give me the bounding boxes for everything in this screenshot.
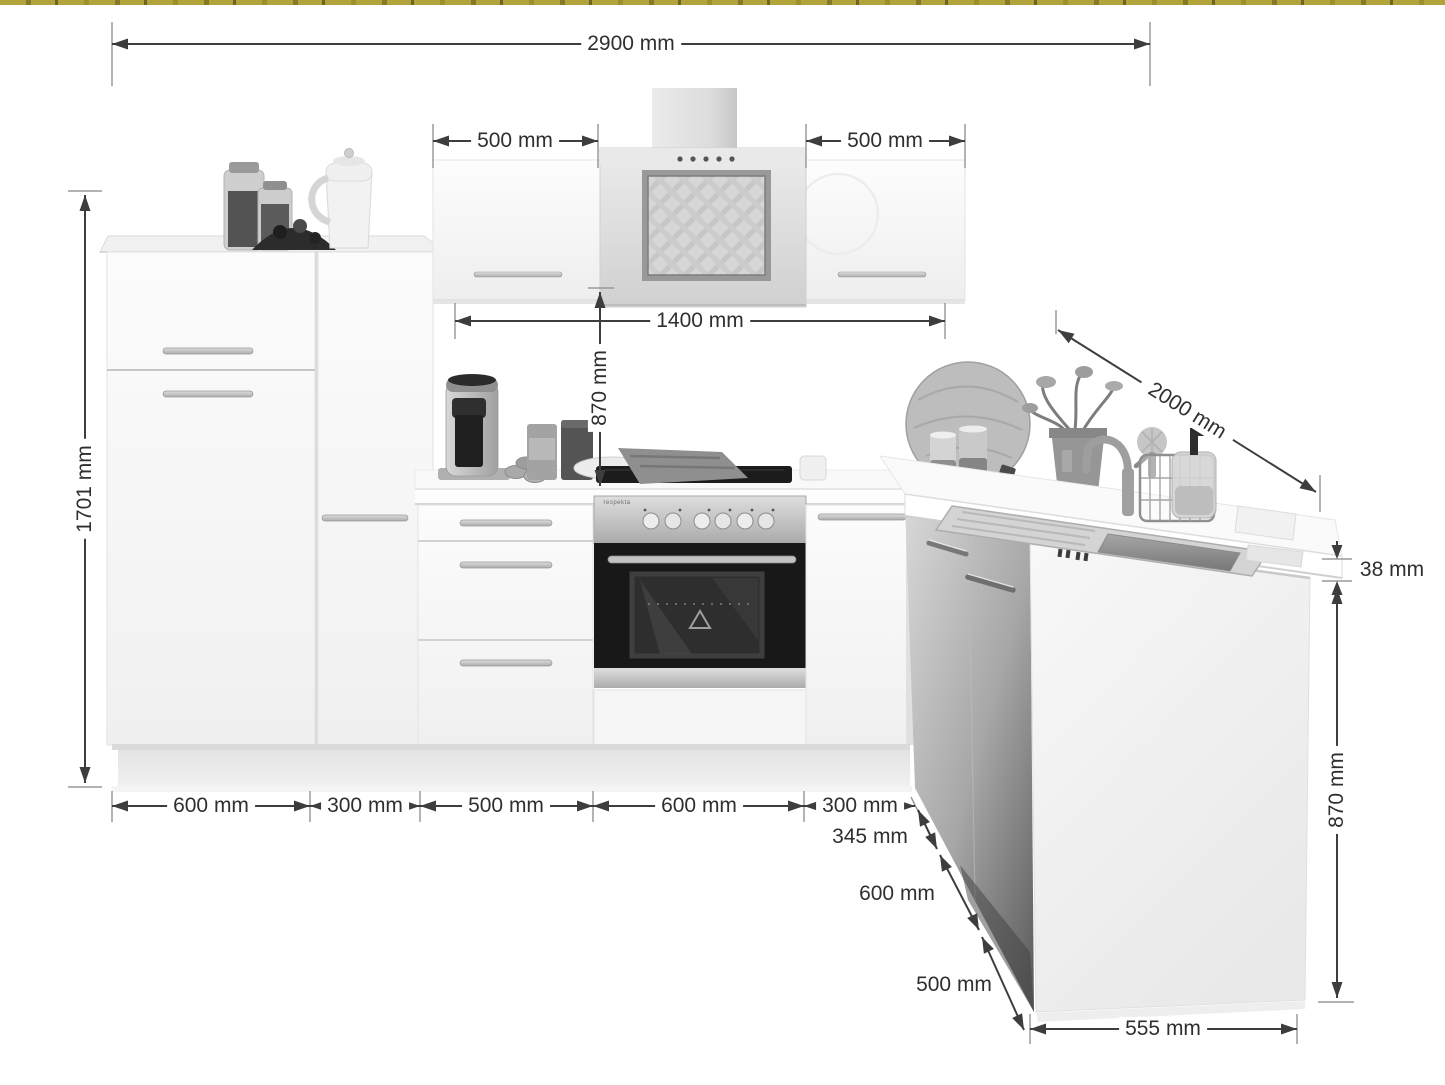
dim-worktop-thickness: 38 mm [1354, 558, 1430, 582]
dim-base-4: 600 mm [655, 794, 743, 818]
dim-hood-to-counter: 870 mm [588, 344, 612, 432]
dim-peninsula-width: 555 mm [1119, 1017, 1207, 1041]
corner-cabinet [905, 505, 1034, 1012]
base-right-handle [818, 514, 906, 520]
soap-dispenser [1172, 428, 1216, 518]
dim-wall-span: 1400 mm [650, 309, 750, 333]
drawer-handle-3 [460, 660, 552, 666]
base-unit-right [806, 505, 914, 745]
drawer-unit [418, 505, 593, 745]
enamel-pitcher [312, 149, 372, 249]
oven-handle [608, 556, 796, 563]
drawer-handle-1 [460, 520, 552, 526]
wall-cabinet-left [433, 160, 600, 304]
potted-plant [1022, 366, 1123, 492]
hood-chimney [652, 88, 737, 150]
dim-corner-3: 500 mm [910, 973, 998, 997]
dim-peninsula-height: 870 mm [1325, 746, 1349, 834]
wall-cabinet-right [798, 160, 965, 304]
dim-wall-cabinet-right: 500 mm [841, 129, 929, 153]
fridge-housing-cabinet [107, 252, 315, 745]
storage-jars [224, 162, 336, 250]
dim-wall-cabinet-left: 500 mm [471, 129, 559, 153]
range-hood [600, 88, 806, 307]
fridge-lower-handle [163, 391, 253, 397]
pantry-handle [322, 515, 408, 521]
fridge-upper-handle [163, 348, 253, 354]
dim-corner-1: 345 mm [826, 825, 914, 849]
mug [800, 456, 826, 480]
dim-base-2: 300 mm [321, 794, 409, 818]
dim-total-width: 2900 mm [581, 32, 681, 56]
oven [594, 496, 806, 745]
dim-base-5: 300 mm [816, 794, 904, 818]
hood-window [645, 173, 768, 278]
hob-and-towel [574, 448, 826, 484]
kitchen-illustration [0, 0, 1445, 1085]
product-dimension-diagram: 2900 mm 500 mm 500 mm 1400 mm 870 mm 170… [0, 0, 1445, 1085]
oven-brand-label: respekta [603, 500, 630, 506]
drawer-handle-2 [460, 562, 552, 568]
dim-base-1: 600 mm [167, 794, 255, 818]
dim-corner-2: 600 mm [853, 882, 941, 906]
peninsula-end-panel [1030, 540, 1310, 1022]
plinth [112, 744, 912, 792]
dim-tall-height: 1701 mm [73, 439, 97, 539]
dim-base-3: 500 mm [462, 794, 550, 818]
